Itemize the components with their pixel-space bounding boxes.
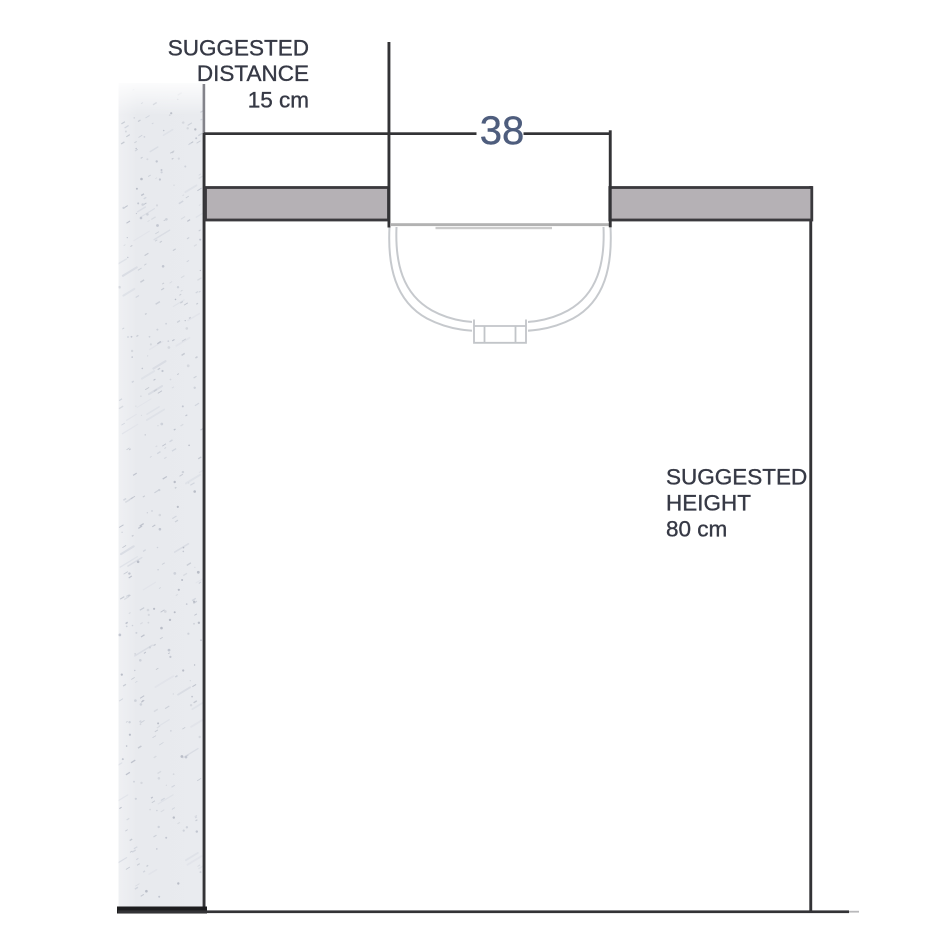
svg-text:80 cm: 80 cm [666, 517, 727, 542]
svg-text:38: 38 [480, 109, 525, 153]
svg-text:SUGGESTED: SUGGESTED [168, 36, 309, 61]
svg-text:SUGGESTED: SUGGESTED [666, 465, 807, 490]
svg-text:HEIGHT: HEIGHT [666, 491, 751, 516]
svg-text:15 cm: 15 cm [248, 88, 309, 113]
svg-text:DISTANCE: DISTANCE [197, 61, 309, 86]
